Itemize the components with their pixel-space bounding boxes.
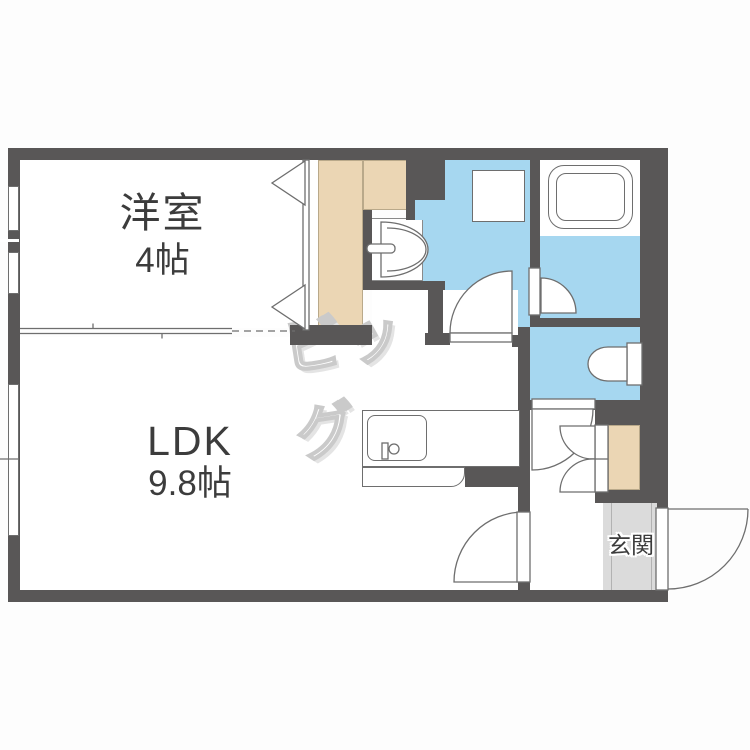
toilet-door-leaf xyxy=(532,399,595,409)
kitchen-faucet xyxy=(382,443,388,459)
toilet-tank xyxy=(627,343,642,385)
bath-door-leaf xyxy=(529,268,540,315)
sliding-partition-ticks xyxy=(93,324,162,339)
label-ldk-size: 9.8帖 xyxy=(120,466,260,503)
bifold-door-triangle-top xyxy=(272,161,305,205)
sliding-partition-lines xyxy=(20,329,232,334)
symbols-overlay xyxy=(0,0,750,750)
label-western-room-size: 4帖 xyxy=(95,243,230,280)
washroom-door-leaf xyxy=(450,333,512,342)
washroom-door-arc xyxy=(450,271,512,333)
label-ldk-name: LDK xyxy=(120,420,260,463)
washroom-floor-notch xyxy=(415,200,445,220)
label-entrance-name: 玄関 xyxy=(598,533,664,557)
toilet-bowl xyxy=(588,347,627,381)
hall-closet-door-arc-bottom xyxy=(560,459,595,492)
entrance-door-arc xyxy=(668,509,748,589)
bath-door-arc xyxy=(541,278,576,313)
kitchen-faucet-knob xyxy=(389,444,399,454)
bifold-door-triangle-bottom xyxy=(272,285,305,329)
ldk-door-arc xyxy=(454,512,524,582)
ldk-door-leaf xyxy=(517,512,530,582)
label-western-room-name: 洋室 xyxy=(95,192,230,235)
washbasin-handle xyxy=(367,244,395,253)
floorplan-canvas: ビッグ xyxy=(0,0,750,750)
